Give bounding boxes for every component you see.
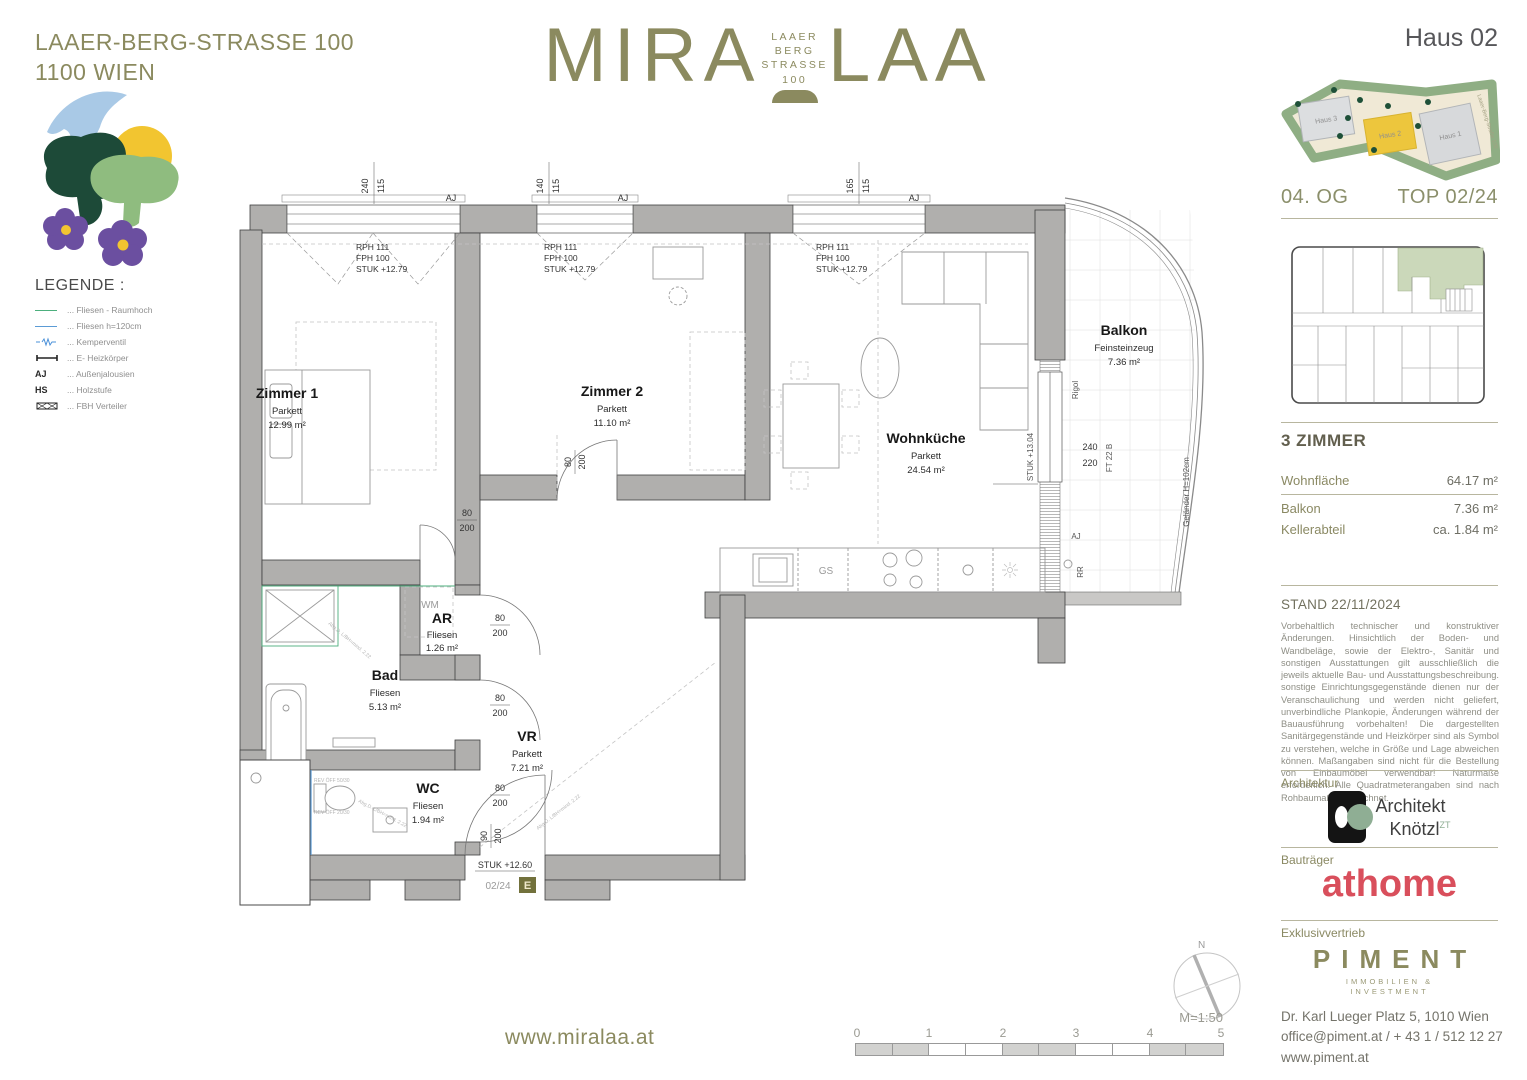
area-table: Wohnfläche 64.17 m² Balkon 7.36 m² Kelle… <box>1281 470 1498 540</box>
svg-text:1.94 m²: 1.94 m² <box>412 815 444 826</box>
svg-text:AJ: AJ <box>618 193 629 203</box>
divider <box>1281 847 1498 848</box>
architect-name-1: Architekt <box>1375 795 1450 818</box>
svg-text:Geländer H=102cm: Geländer H=102cm <box>1182 457 1191 527</box>
flower-illustration <box>25 76 210 271</box>
svg-text:Fliesen: Fliesen <box>370 688 401 699</box>
window-notes: RPH 111 FPH 100 STUK +12.79 RPH 111 FPH … <box>356 242 868 274</box>
legend: ... Fliesen - Raumhoch ... Fliesen h=120… <box>35 302 153 414</box>
project-website[interactable]: www.miralaa.at <box>505 1026 654 1050</box>
violet-flower-icon <box>98 220 147 266</box>
svg-text:FPH 100: FPH 100 <box>356 253 390 263</box>
svg-text:80: 80 <box>563 457 573 467</box>
svg-text:Bad: Bad <box>372 667 398 683</box>
zimmer2-furniture <box>653 247 745 470</box>
architect-logo: Architekt KnötzlZT <box>1281 791 1498 843</box>
svg-text:WM: WM <box>421 600 439 611</box>
balcony-tiles <box>1060 210 1203 592</box>
svg-text:200: 200 <box>492 708 507 718</box>
svg-text:STUK +12.79: STUK +12.79 <box>544 264 596 274</box>
svg-text:240: 240 <box>1082 442 1097 452</box>
table-row: Kellerabteil ca. 1.84 m² <box>1281 519 1498 540</box>
divider <box>1281 422 1498 423</box>
svg-text:Rigol: Rigol <box>1071 381 1080 399</box>
scale-label: M=1:50 <box>855 1010 1223 1025</box>
legend-title: LEGENDE : <box>35 277 125 295</box>
svg-text:80: 80 <box>462 508 472 518</box>
legend-item: AJ ... Außenjalousien <box>35 366 153 382</box>
svg-text:STUK +13.04: STUK +13.04 <box>1026 432 1035 481</box>
svg-text:REV ÖFF 20/30: REV ÖFF 20/30 <box>314 809 350 816</box>
kitchen-counter <box>720 548 1045 592</box>
contact-phone[interactable]: office@piment.at / + 43 1 / 512 12 27 <box>1281 1027 1503 1047</box>
svg-text:RR: RR <box>1076 566 1085 578</box>
hs-symbol: HS <box>35 385 67 395</box>
svg-text:Fliesen: Fliesen <box>413 801 444 812</box>
scalebar <box>855 1043 1224 1056</box>
divider <box>1281 585 1498 586</box>
svg-text:Parkett: Parkett <box>272 406 302 417</box>
fbh-icon <box>35 401 67 411</box>
svg-text:12.99 m²: 12.99 m² <box>268 420 306 431</box>
svg-text:REV ÖFF 50/30: REV ÖFF 50/30 <box>314 777 350 784</box>
hill-icon <box>772 90 818 103</box>
svg-text:165: 165 <box>845 178 855 193</box>
svg-text:Balkon: Balkon <box>1101 322 1148 338</box>
aj-symbol: AJ <box>35 369 67 379</box>
divider <box>1281 218 1498 219</box>
architect-mark-icon <box>1328 791 1366 843</box>
svg-text:1.26 m²: 1.26 m² <box>426 643 458 654</box>
legend-item: HS ... Holzstufe <box>35 382 153 398</box>
top-label: TOP 02/24 <box>1398 186 1499 209</box>
scalebar-ticks: 0 1 2 3 4 5 <box>855 1026 1223 1040</box>
svg-text:115: 115 <box>376 179 386 193</box>
svg-text:115: 115 <box>551 179 561 193</box>
table-row: Balkon 7.36 m² <box>1281 498 1498 519</box>
floor-key-plan <box>1278 233 1498 419</box>
architect-name-2: Knötzl <box>1389 819 1439 839</box>
address-line1: LAAER-BERG-STRASSE 100 <box>35 28 354 58</box>
legend-item: ... Fliesen h=120cm <box>35 318 153 334</box>
svg-text:240: 240 <box>360 178 370 193</box>
divider <box>1281 920 1498 921</box>
svg-text:FPH 100: FPH 100 <box>816 253 850 263</box>
svg-text:115: 115 <box>861 179 871 193</box>
svg-text:80: 80 <box>495 613 505 623</box>
floor-label: 04. OG <box>1281 186 1348 209</box>
contact-website[interactable]: www.piment.at <box>1281 1048 1503 1068</box>
svg-text:FT 22 B: FT 22 B <box>1105 444 1114 472</box>
svg-text:STUK +12.79: STUK +12.79 <box>816 264 868 274</box>
svg-text:Wohnküche: Wohnküche <box>886 430 965 446</box>
balcony-railing <box>1065 198 1203 593</box>
tiles-120cm-icon <box>35 326 67 327</box>
svg-text:RPH 111: RPH 111 <box>356 242 390 252</box>
exklusiv-label: Exklusivvertrieb <box>1281 926 1365 940</box>
table-row: Wohnfläche 64.17 m² <box>1281 470 1498 495</box>
svg-text:7.36 m²: 7.36 m² <box>1108 357 1140 368</box>
svg-text:140: 140 <box>535 178 545 193</box>
svg-text:200: 200 <box>577 454 587 469</box>
svg-text:Fliesen: Fliesen <box>427 630 458 641</box>
piment-sub1: IMMOBILIEN & <box>1281 977 1498 986</box>
miralaa-logo: MIRA LAAER BERG STRASSE 100 LAA <box>553 18 983 103</box>
svg-text:80: 80 <box>495 693 505 703</box>
svg-text:AJ: AJ <box>1071 532 1080 541</box>
legend-item: ... FBH Verteiler <box>35 398 153 414</box>
haus-1-building: Haus 1 <box>1419 103 1481 165</box>
svg-text:GS: GS <box>819 566 834 577</box>
svg-text:AR: AR <box>432 610 452 626</box>
svg-text:Zimmer 2: Zimmer 2 <box>581 383 643 399</box>
divider <box>1281 770 1498 771</box>
svg-text:200: 200 <box>459 523 474 533</box>
floor-top-row: 04. OG TOP 02/24 <box>1281 186 1498 209</box>
svg-text:FPH 100: FPH 100 <box>544 253 578 263</box>
svg-text:Feinsteinzeug: Feinsteinzeug <box>1094 343 1153 354</box>
contact-address: Dr. Karl Lueger Platz 5, 1010 Wien <box>1281 1007 1503 1027</box>
svg-text:STUK +12.79: STUK +12.79 <box>356 264 408 274</box>
window-dims: 240 115 140 115 165 115 AJ AJ AJ <box>360 162 919 204</box>
athome-logo: athome <box>1281 863 1498 906</box>
svg-text:N: N <box>1198 940 1205 951</box>
svg-text:220: 220 <box>1082 458 1097 468</box>
balcony-slab <box>1060 592 1181 605</box>
svg-text:200: 200 <box>492 798 507 808</box>
svg-text:Parkett: Parkett <box>512 749 542 760</box>
valve-icon <box>35 337 67 347</box>
svg-text:RPH 111: RPH 111 <box>816 242 850 252</box>
svg-text:VR: VR <box>517 728 536 744</box>
svg-text:80: 80 <box>495 783 505 793</box>
rooms-count-title: 3 ZIMMER <box>1281 431 1366 451</box>
svg-text:7.21 m²: 7.21 m² <box>511 763 543 774</box>
svg-text:Abg.D. L/BH=mind. 2.22: Abg.D. L/BH=mind. 2.22 <box>536 793 582 831</box>
piment-sub2: INVESTMENT <box>1281 987 1498 996</box>
svg-text:90: 90 <box>479 831 489 841</box>
legend-item: ... Fliesen - Raumhoch <box>35 302 153 318</box>
svg-text:Parkett: Parkett <box>911 451 941 462</box>
svg-text:200: 200 <box>493 828 503 843</box>
plan-date: STAND 22/11/2024 <box>1281 597 1401 612</box>
architektur-label: Architektur <box>1281 776 1338 790</box>
svg-text:24.54 m²: 24.54 m² <box>907 465 945 476</box>
livingroom-furniture <box>764 252 1028 489</box>
svg-text:AJ: AJ <box>909 193 920 203</box>
svg-text:5.13 m²: 5.13 m² <box>369 702 401 713</box>
svg-text:E: E <box>524 880 531 892</box>
svg-text:STUK +12.60: STUK +12.60 <box>478 860 532 870</box>
legend-item: ... Kemperventil <box>35 334 153 350</box>
svg-text:Abg.D. L/BH=mind. 2.22: Abg.D. L/BH=mind. 2.22 <box>327 621 372 660</box>
svg-text:11.10 m²: 11.10 m² <box>594 418 631 429</box>
contact-block: Dr. Karl Lueger Platz 5, 1010 Wien offic… <box>1281 1007 1503 1068</box>
svg-text:AJ: AJ <box>446 193 457 203</box>
svg-text:RPH 111: RPH 111 <box>544 242 578 252</box>
svg-text:200: 200 <box>492 628 507 638</box>
svg-text:Zimmer 1: Zimmer 1 <box>256 385 318 401</box>
site-plan: Haus 3 Haus 2 Haus 1 Laaer-Berg-Straße 1… <box>1278 62 1500 182</box>
logo-subtitle: LAAER BERG STRASSE 100 <box>761 18 828 103</box>
tiles-fullheight-icon <box>35 310 67 311</box>
tree-light-icon <box>90 155 178 227</box>
logo-word-right: LAA <box>828 18 993 94</box>
floor-plan: 240 115 140 115 165 115 AJ AJ AJ RPH 111… <box>238 157 1238 942</box>
svg-text:Parkett: Parkett <box>597 404 627 415</box>
logo-word-left: MIRA <box>543 18 761 94</box>
svg-text:02/24: 02/24 <box>485 881 510 892</box>
heater-icon <box>35 353 67 363</box>
haus-title: Haus 02 <box>1360 24 1498 53</box>
piment-logo: PIMENT <box>1281 944 1498 975</box>
legend-item: ... E- Heizkörper <box>35 350 153 366</box>
svg-text:WC: WC <box>416 780 439 796</box>
walls <box>240 205 1065 900</box>
